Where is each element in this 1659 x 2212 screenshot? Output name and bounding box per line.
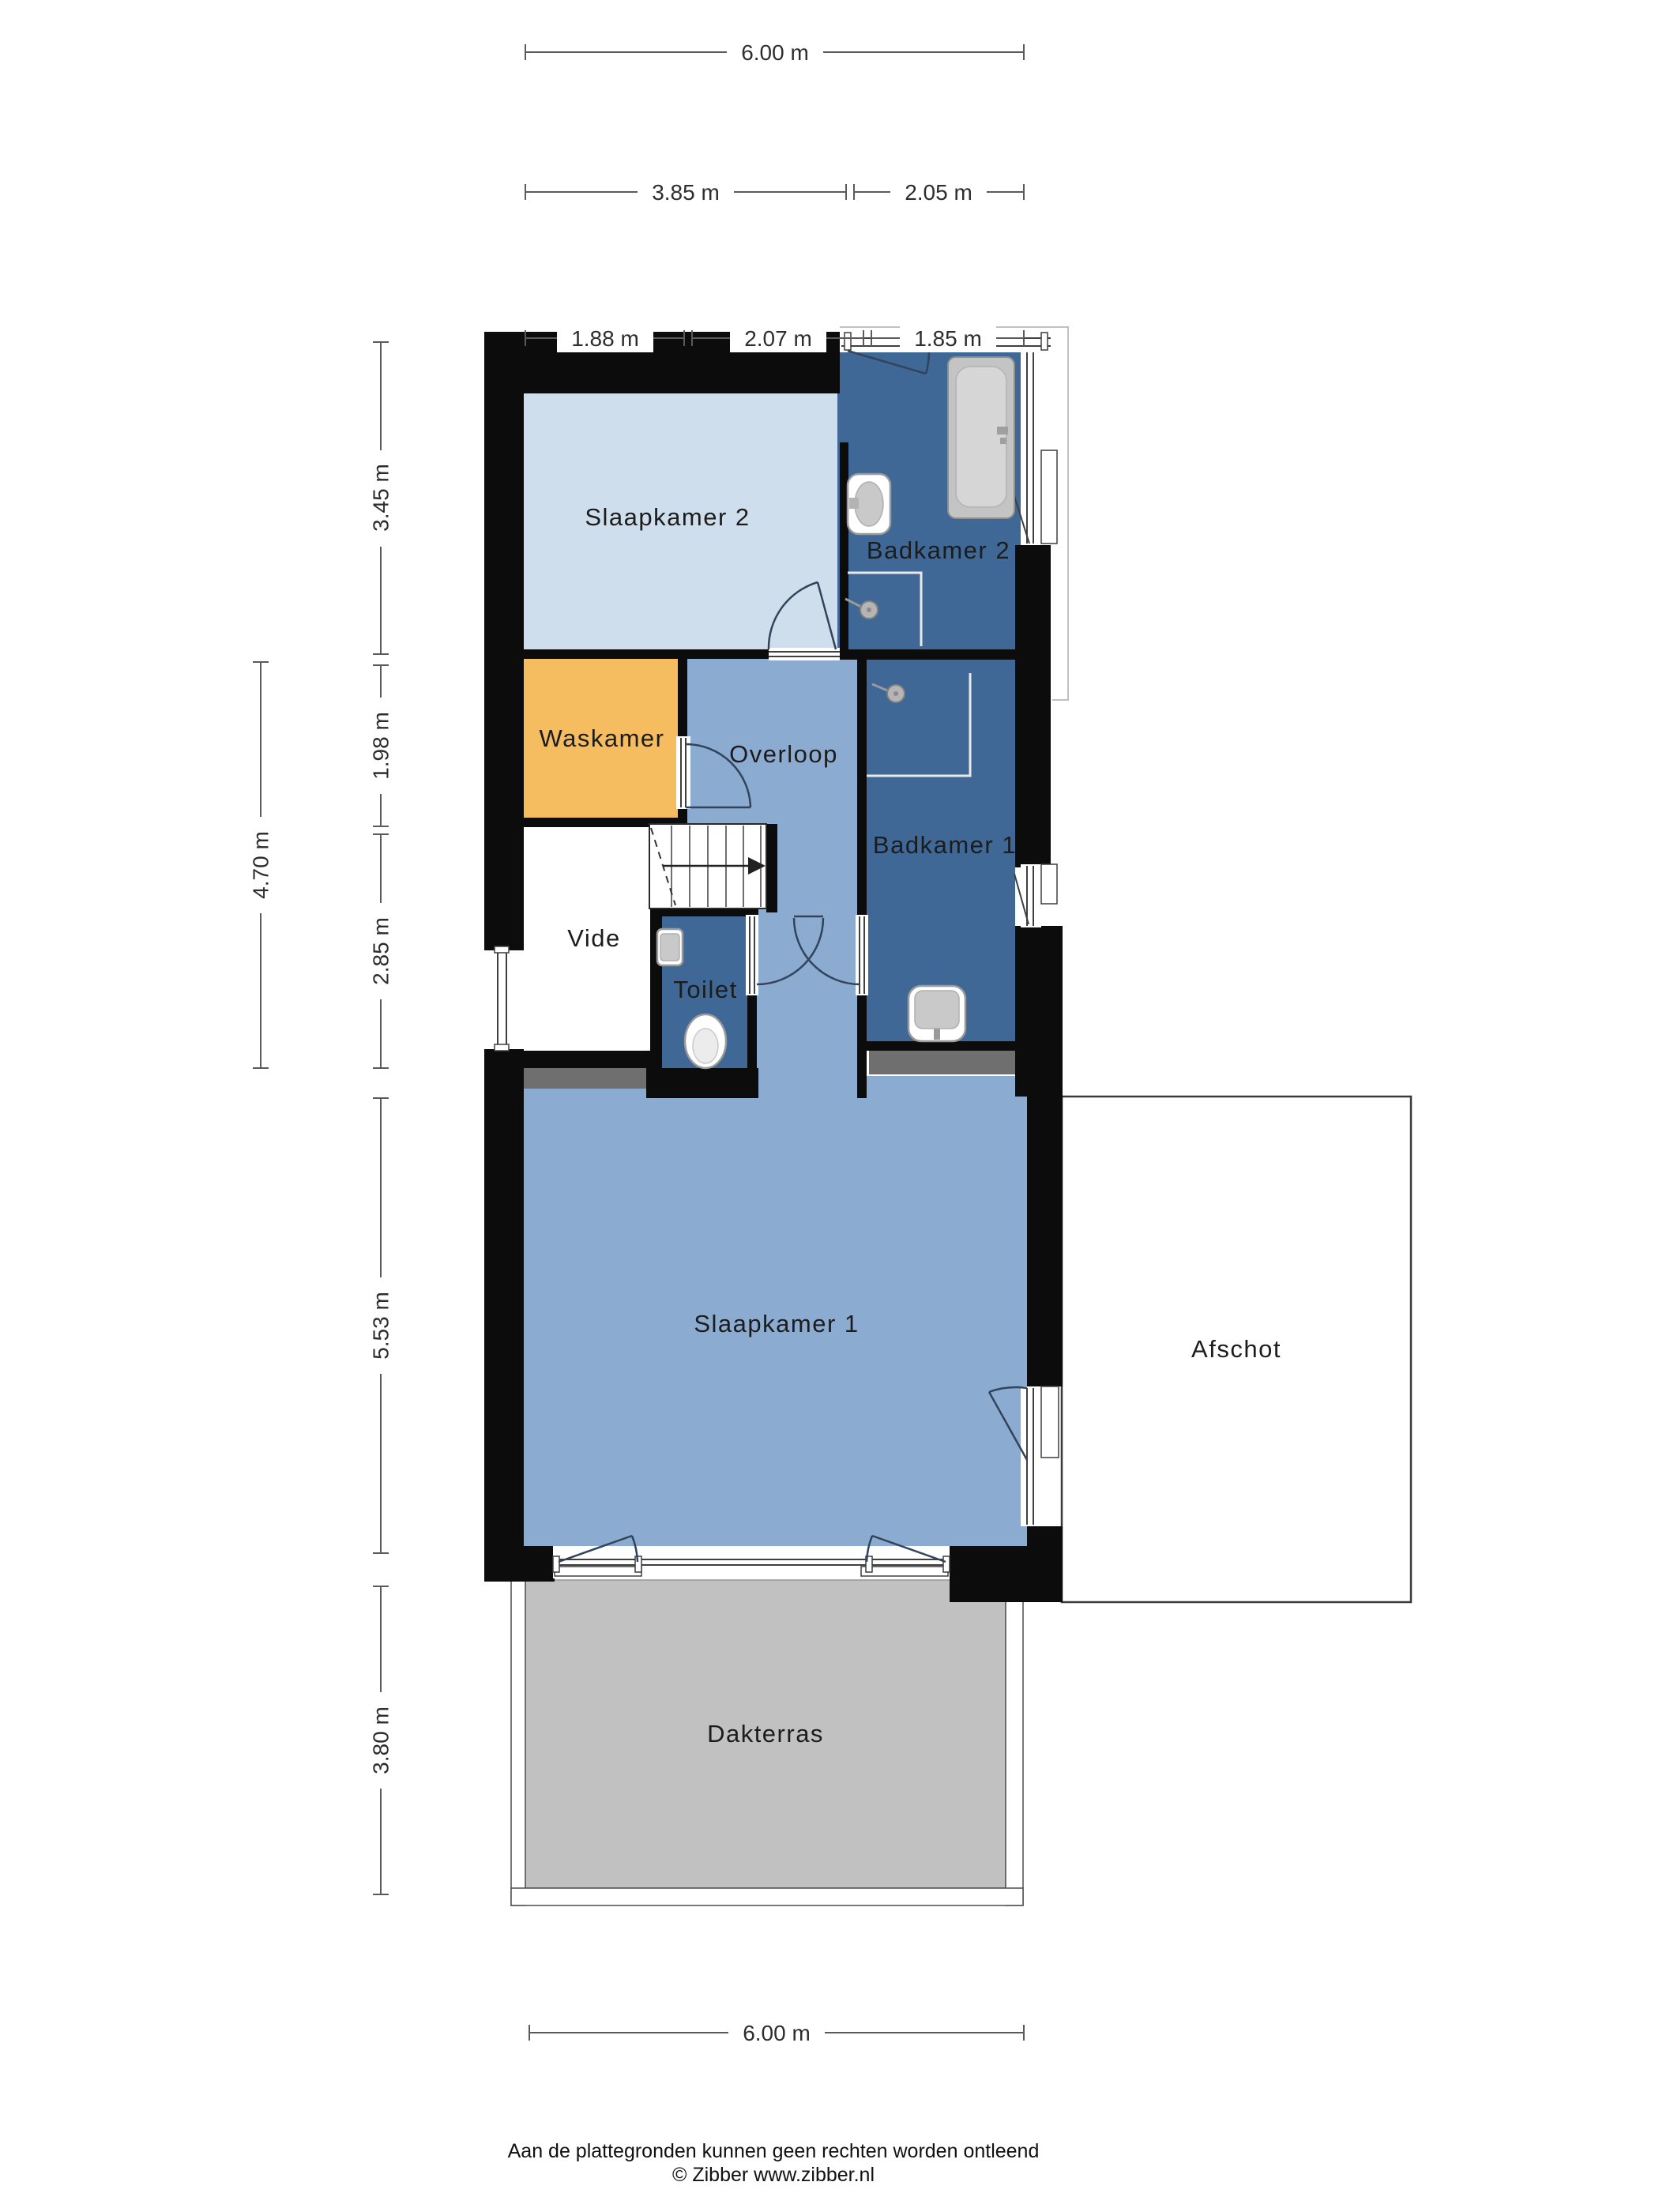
window-slaapkamer1-right <box>1021 1386 1059 1526</box>
dim-top-seg-left: 3.85 m <box>525 178 846 206</box>
footer-credit: © Zibber www.zibber.nl <box>672 2164 875 2186</box>
label-toilet: Toilet <box>673 976 737 1003</box>
svg-text:2.05 m: 2.05 m <box>905 180 972 205</box>
wall-stairs-right <box>766 824 777 912</box>
wall-bottom-left <box>484 1546 555 1582</box>
wall-sk2-bottom <box>524 649 769 659</box>
label-dakterras: Dakterras <box>707 1720 824 1747</box>
jamb-toilet-door <box>746 915 758 995</box>
svg-text:5.53 m: 5.53 m <box>369 1292 393 1360</box>
wall-waskamer-right-a <box>678 659 687 736</box>
svg-text:1.85 m: 1.85 m <box>914 326 982 351</box>
label-waskamer: Waskamer <box>540 724 665 752</box>
svg-text:3.45 m: 3.45 m <box>369 464 393 532</box>
dim-left-mid-total: 4.70 m <box>246 662 275 1068</box>
label-afschot: Afschot <box>1191 1335 1281 1363</box>
wall-sk2-b2-partition <box>840 442 848 649</box>
stairs <box>649 824 766 908</box>
svg-text:2.07 m: 2.07 m <box>744 326 812 351</box>
label-badkamer1: Badkamer 1 <box>873 831 1017 859</box>
wall-toilet-right-lower <box>747 994 757 1076</box>
label-slaapkamer2: Slaapkamer 2 <box>585 503 750 531</box>
label-overloop: Overloop <box>729 740 838 768</box>
svg-text:6.00 m: 6.00 m <box>741 40 809 65</box>
dakterras-rail-left <box>511 1580 525 1905</box>
window-badkamer2-right <box>1014 351 1057 545</box>
dim-left-waskamer: 1.98 m <box>367 665 395 826</box>
svg-text:6.00 m: 6.00 m <box>743 2021 811 2045</box>
threshold-waskamer <box>676 736 690 809</box>
wall-left-upper <box>484 393 524 950</box>
window-badkamer1-right <box>1014 864 1057 927</box>
wall-vide-bottom <box>484 1051 662 1068</box>
toilet-bowl-fixture <box>685 1014 726 1068</box>
label-badkamer2: Badkamer 2 <box>867 536 1010 564</box>
toilet-badkamer1-fixture <box>908 986 965 1041</box>
dakterras-rail-right <box>1006 1580 1023 1905</box>
svg-text:1.98 m: 1.98 m <box>369 712 393 780</box>
wall-toilet-bottom <box>646 1068 758 1098</box>
window-vide-left <box>484 946 524 1051</box>
svg-text:3.80 m: 3.80 m <box>369 1706 393 1774</box>
wall-right-a <box>1015 545 1051 867</box>
wall-b1-left-lower <box>857 994 867 1098</box>
dakterras-rail-bottom <box>511 1888 1023 1905</box>
wall-right-d <box>1027 1526 1063 1602</box>
wall-b2-bottom <box>837 649 1015 660</box>
floorplan-page: Slaapkamer 2 Badkamer 2 Waskamer Overloo… <box>0 0 1659 2212</box>
svg-text:1.88 m: 1.88 m <box>571 326 639 351</box>
svg-text:3.85 m: 3.85 m <box>652 180 720 205</box>
footer: Aan de plattegronden kunnen geen rechten… <box>508 2140 1040 2186</box>
bathtub-faucet <box>997 427 1008 434</box>
window-terrace-band <box>553 1546 950 1578</box>
wall-right-c <box>1027 1097 1063 1386</box>
dim-left-terras: 3.80 m <box>367 1586 395 1894</box>
sink-badkamer2-fixture <box>848 474 890 534</box>
label-vide: Vide <box>567 924 621 952</box>
svg-text:4.70 m: 4.70 m <box>249 831 273 899</box>
dim-top-seg-right: 2.05 m <box>854 178 1024 206</box>
knee-wall-right <box>869 1049 1025 1074</box>
wall-right-b <box>1015 926 1063 1097</box>
svg-text:2.85 m: 2.85 m <box>369 917 393 985</box>
label-slaapkamer1: Slaapkamer 1 <box>694 1310 859 1337</box>
knee-wall-left <box>506 1068 653 1089</box>
dim-left-sk1: 5.53 m <box>367 1098 395 1553</box>
threshold-slaapkamer2 <box>769 648 840 660</box>
wall-left-lower <box>484 1049 524 1548</box>
footer-disclaimer: Aan de plattegronden kunnen geen rechten… <box>508 2140 1040 2162</box>
floorplan-canvas: Slaapkamer 2 Badkamer 2 Waskamer Overloo… <box>0 0 1659 2212</box>
wall-b1-bottom <box>867 1041 1025 1051</box>
wall-b1-left-upper <box>857 659 867 916</box>
dim-top-total: 6.00 m <box>525 38 1024 66</box>
dim-left-sk2: 3.45 m <box>367 342 395 654</box>
bathtub-fixture <box>948 357 1014 518</box>
sink-toilet-fixture <box>657 929 683 965</box>
dim-left-vide: 2.85 m <box>367 834 395 1068</box>
dim-bottom-total: 6.00 m <box>529 2018 1024 2047</box>
